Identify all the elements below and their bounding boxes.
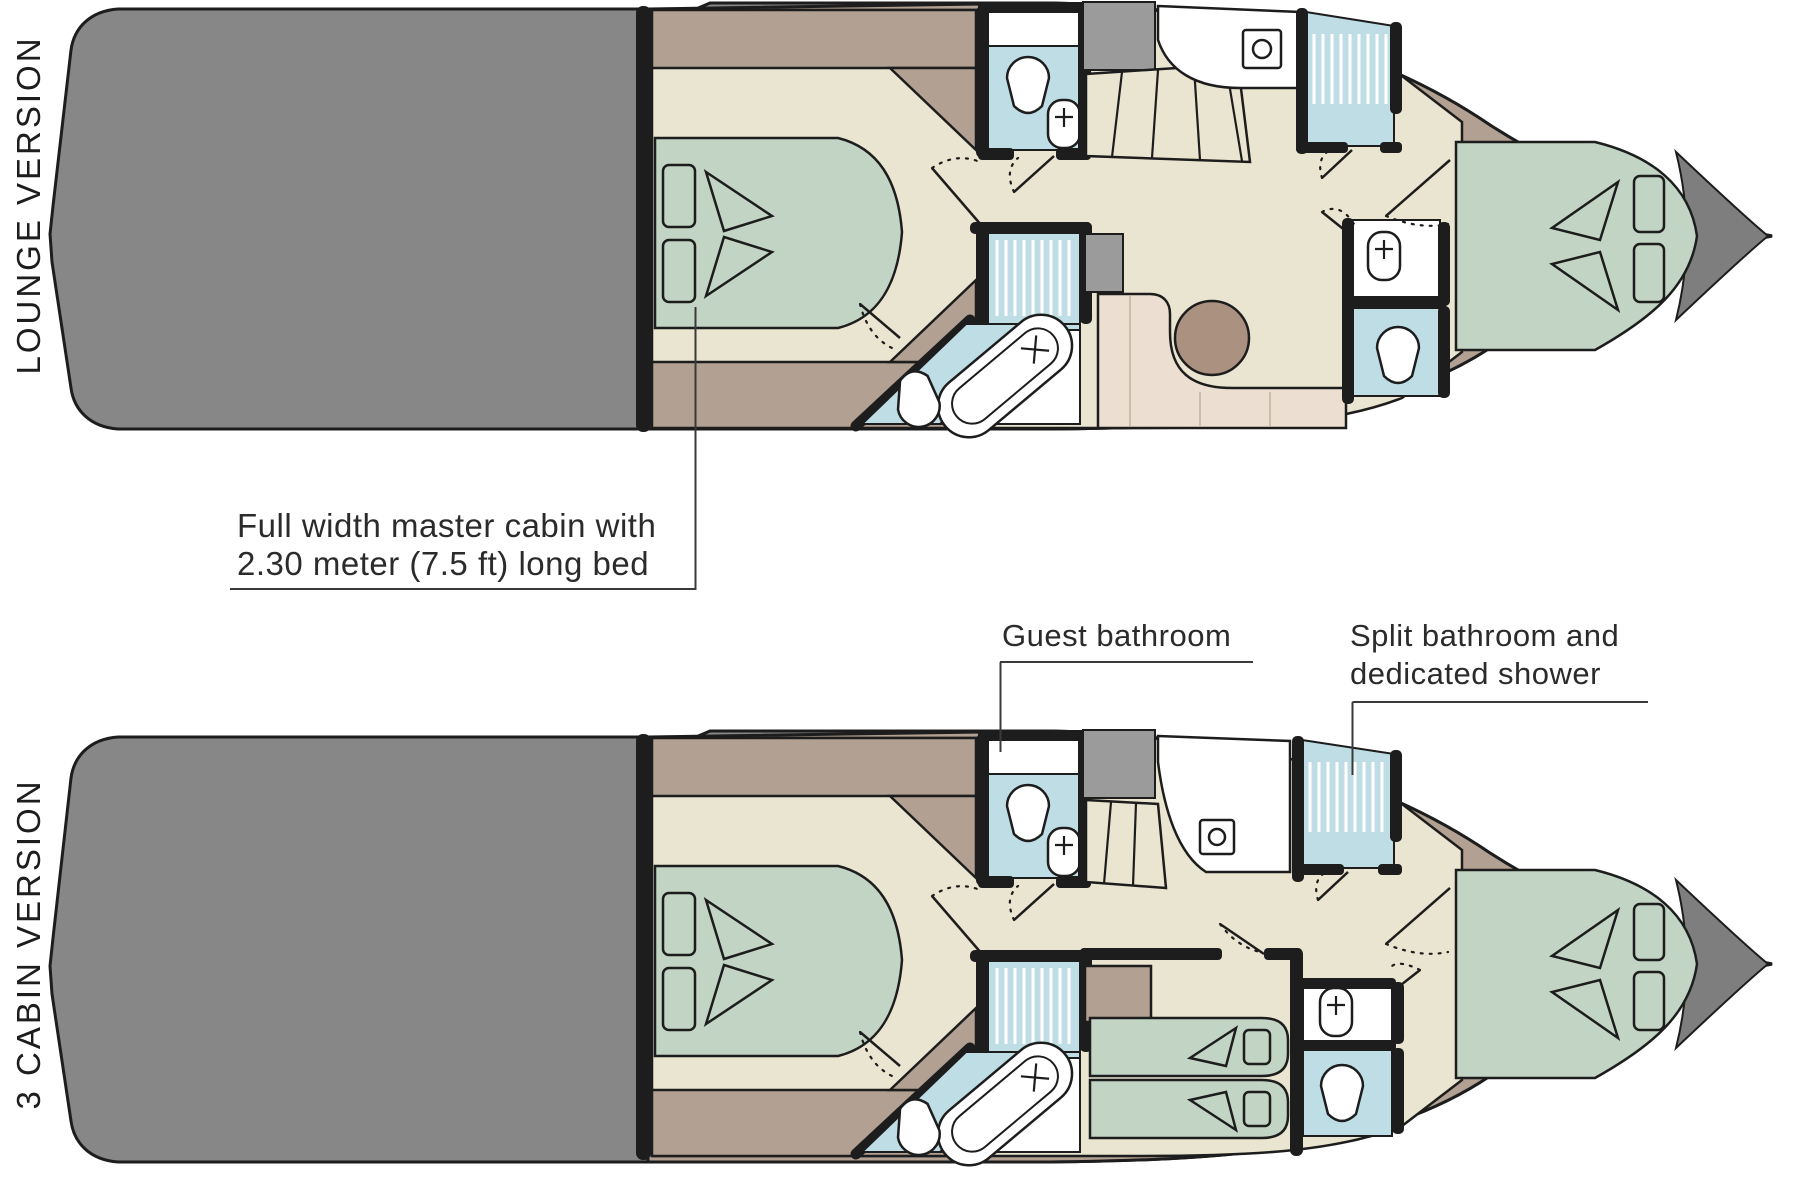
dinette-table-icon [1175,301,1249,375]
technical-space [1083,730,1155,798]
sink-icon [1048,100,1080,148]
main-bulkhead [636,6,651,432]
wardrobe [652,10,976,68]
single-bed-icon [1090,1080,1288,1138]
toilet-icon [1007,57,1049,113]
split-bathroom-note-line2: dedicated shower [1350,656,1601,691]
three-cabin-version-label: 3 CABIN VERSION [10,778,47,1109]
split-bathroom [1296,964,1420,1136]
bathroom-counter [988,8,1088,48]
floor-plan-canvas: LOUNGE VERSION 3 CABIN VERSION Full widt… [0,0,1800,1200]
side-labels: LOUNGE VERSION 3 CABIN VERSION [10,35,47,1109]
sink-icon [1320,988,1352,1036]
toilet-icon [1377,327,1419,383]
split-shower-room [1296,8,1402,178]
technical-space [1083,2,1155,70]
lounge-version-label: LOUNGE VERSION [10,35,47,374]
master-cabin-note-line1: Full width master cabin with [237,507,656,544]
guest-bathroom-note: Guest bathroom [1002,618,1231,653]
toilet-icon [1321,1065,1363,1121]
single-bed-icon [1090,1018,1288,1076]
technical-space [1085,234,1123,292]
third-cabin [1080,924,1303,1156]
wardrobe [1085,966,1151,1022]
wardrobe [652,738,976,796]
toilet-icon [1007,785,1049,841]
sink-icon [1048,828,1080,876]
three-cabin-plan [50,730,1772,1178]
master-cabin-note-line2: 2.30 meter (7.5 ft) long bed [237,545,649,582]
shower-stall-icon [1302,740,1394,868]
sink-icon [1368,232,1400,280]
lounge-plan [50,2,1772,450]
split-bathroom-note-line1: Split bathroom and [1350,618,1619,653]
main-bulkhead [636,734,651,1160]
yacht-floorplan-page: LOUNGE VERSION 3 CABIN VERSION Full widt… [0,0,1800,1200]
bathroom-counter [988,736,1088,776]
stairs-icon [1086,800,1166,888]
